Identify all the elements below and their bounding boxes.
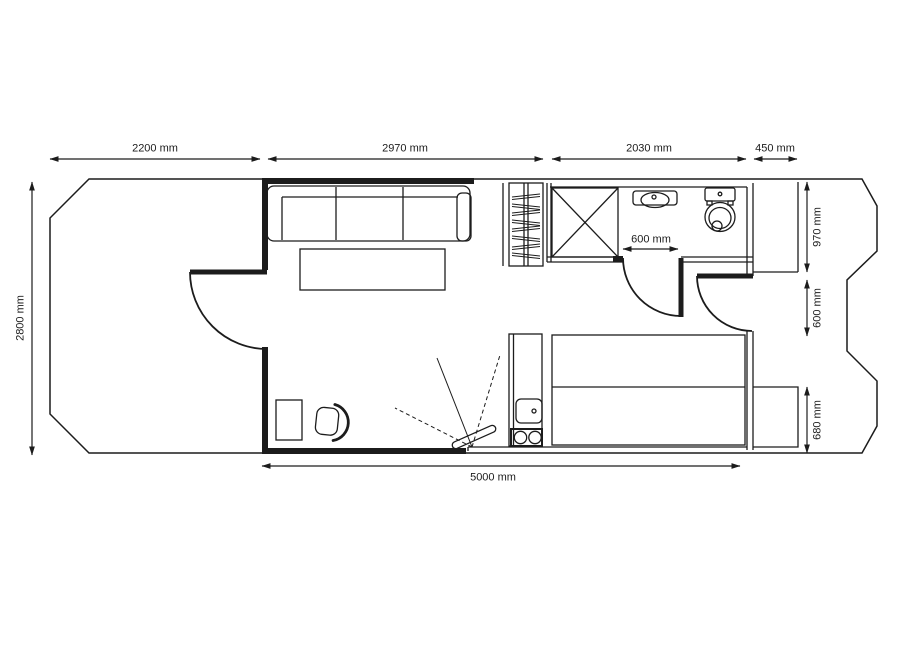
dim-label-bathroom-door: 600 mm [631,235,671,246]
shower [552,188,618,257]
toilet [705,188,735,232]
dim-label-bottom: 5000 mm [470,473,516,484]
bed [552,335,745,445]
interior-walls [468,182,798,451]
dim-label-right-1: 970 mm [813,207,824,247]
dim-label-top-2: 2970 mm [382,144,428,155]
dim-label-top-3: 2030 mm [626,144,672,155]
washbasin [633,191,677,208]
sofa [267,186,471,241]
bathroom-door [623,258,681,317]
desk [276,400,302,440]
dim-label-left: 2800 mm [16,295,27,341]
roof-ladder [509,183,543,266]
cabin-walls [262,178,623,453]
coffee-table [300,249,445,290]
dim-label-top-1: 2200 mm [132,144,178,155]
office-chair [314,403,350,442]
stern-platform [753,387,798,447]
side-deck [753,182,798,272]
entry-door [190,272,267,349]
tv-screen-icon [451,424,497,450]
floor-plan-drawing [0,0,910,645]
hob-icon [511,429,542,446]
tv-swivel-arm [395,355,500,450]
dim-label-top-4: 450 mm [755,144,795,155]
dim-label-right-2: 600 mm [813,288,824,328]
floor-plan: 2200 mm 2970 mm 2030 mm 450 mm 2800 mm 9… [0,0,910,645]
kitchenette [509,334,542,446]
dim-label-right-3: 680 mm [813,400,824,440]
kitchen-sink-icon [516,399,542,423]
deck-door [697,276,753,331]
